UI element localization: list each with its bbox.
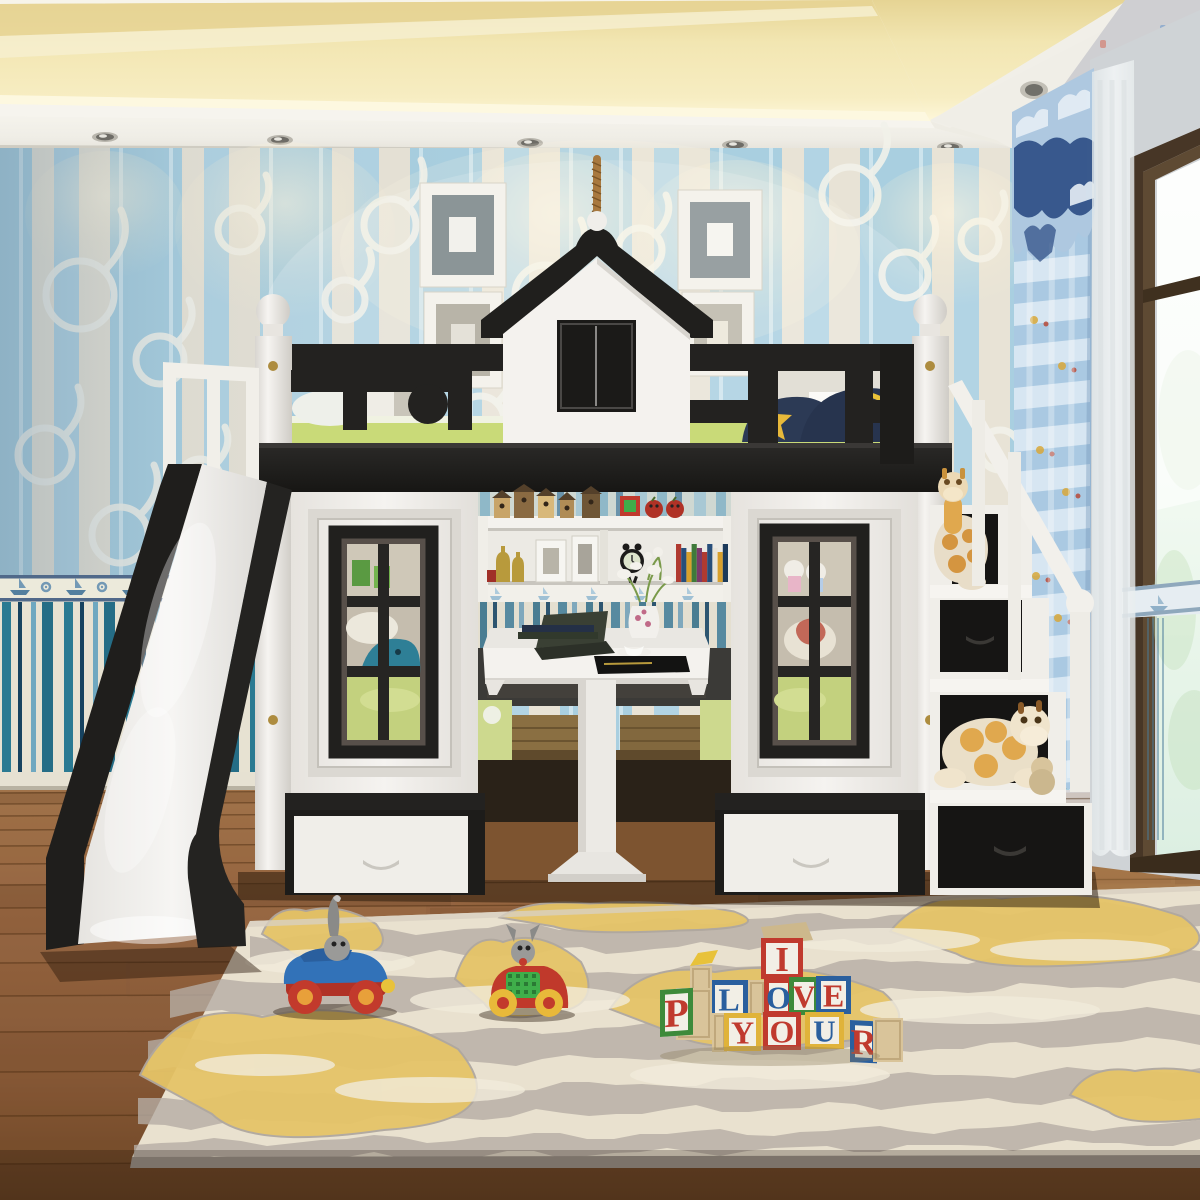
- svg-text:V: V: [792, 978, 815, 1014]
- svg-text:Y: Y: [731, 1014, 754, 1050]
- svg-text:I: I: [775, 940, 789, 979]
- svg-text:U: U: [813, 1014, 835, 1049]
- svg-text:L: L: [718, 981, 739, 1017]
- svg-text:E: E: [823, 977, 844, 1013]
- svg-text:O: O: [770, 1013, 795, 1049]
- svg-text:P: P: [664, 990, 688, 1037]
- svg-text:O: O: [766, 979, 791, 1015]
